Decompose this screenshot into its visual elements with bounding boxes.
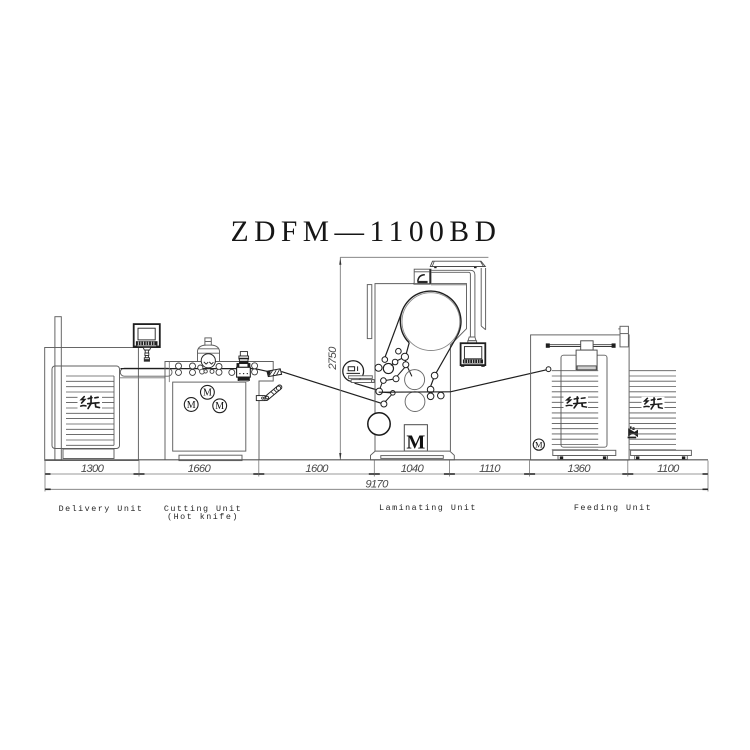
svg-text:M: M (187, 400, 196, 411)
svg-text:1360: 1360 (568, 463, 592, 475)
svg-text:1040: 1040 (401, 463, 425, 475)
svg-text:9170: 9170 (365, 478, 389, 490)
svg-text:M: M (215, 401, 224, 412)
svg-text:(Hot knife): (Hot knife) (167, 512, 239, 522)
svg-text:ZDFM—1100BD: ZDFM—1100BD (231, 216, 502, 248)
svg-text:Delivery Unit: Delivery Unit (59, 504, 144, 514)
svg-text:1600: 1600 (305, 463, 329, 475)
svg-text:Laminating Unit: Laminating Unit (379, 503, 477, 513)
svg-text:Feeding Unit: Feeding Unit (574, 503, 652, 513)
svg-text:M: M (203, 388, 212, 399)
svg-text:M: M (535, 440, 543, 450)
svg-text:2750: 2750 (327, 346, 339, 371)
svg-text:1660: 1660 (188, 463, 212, 475)
svg-text:1110: 1110 (479, 463, 501, 475)
svg-text:M: M (406, 432, 425, 454)
svg-text:1100: 1100 (657, 463, 680, 475)
svg-text:1300: 1300 (81, 463, 105, 475)
